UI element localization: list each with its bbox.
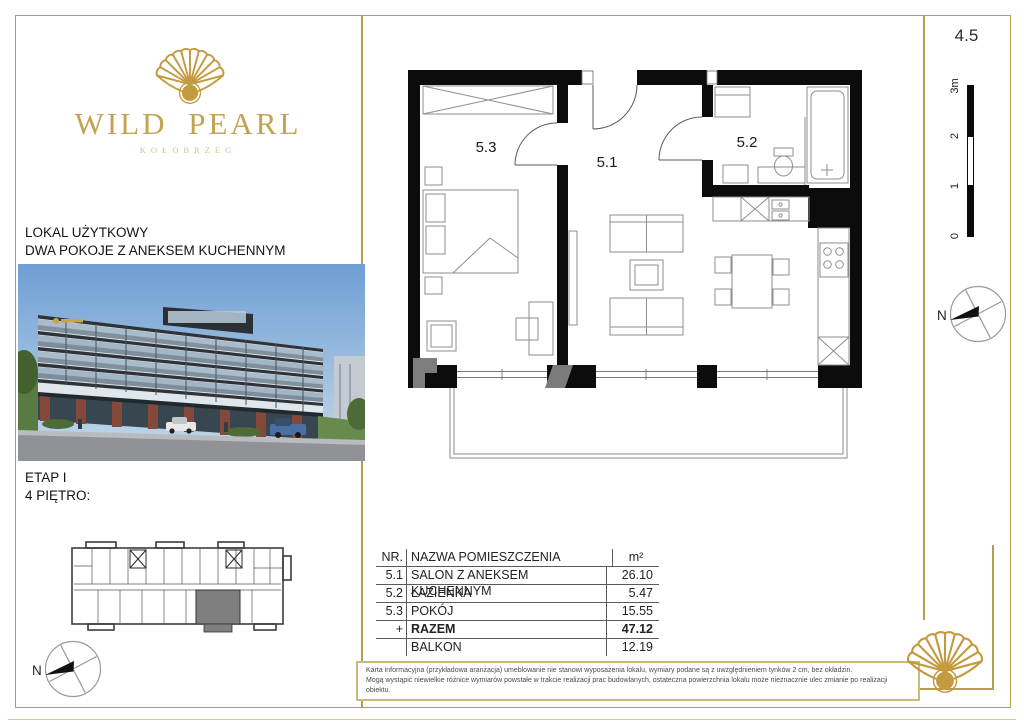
dining-set bbox=[715, 255, 789, 308]
scale-label-2: 2 bbox=[948, 127, 962, 145]
table-row: 5.2 ŁAZIENKA 5.47 bbox=[376, 585, 659, 603]
table-row: 5.3 POKÓJ 15.55 bbox=[376, 603, 659, 621]
floor-label: 4 PIĘTRO: bbox=[25, 487, 90, 505]
stage-label: ETAP I bbox=[25, 469, 90, 487]
unit-type-block: LOKAL UŻYTKOWY DWA POKOJE Z ANEKSEM KUCH… bbox=[25, 224, 286, 260]
floor-plan: 5.1 5.2 5.3 bbox=[395, 55, 885, 485]
table-row: 5.1 SALON Z ANEKSEM KUCHENNYM 26.10 bbox=[376, 567, 659, 585]
area-table: NR. NAZWA POMIESZCZENIA m² 5.1 SALON Z A… bbox=[376, 549, 659, 656]
north-label: N bbox=[32, 663, 42, 678]
walls bbox=[408, 70, 862, 388]
header-name: NAZWA POMIESZCZENIA bbox=[406, 549, 613, 566]
north-label: N bbox=[937, 308, 947, 323]
cell-nr: + bbox=[376, 621, 406, 638]
cell-name: BALKON bbox=[406, 639, 607, 656]
sofa bbox=[610, 298, 683, 335]
scale-label-3m: 3m bbox=[948, 77, 962, 95]
scale-bar-segment bbox=[967, 85, 974, 136]
scale-bar-segment bbox=[967, 186, 974, 237]
cell-area: 47.12 bbox=[607, 621, 659, 638]
brand-city: KOŁOBRZEG bbox=[15, 145, 361, 155]
cell-area: 15.55 bbox=[607, 603, 659, 620]
kitchen-counter bbox=[713, 197, 809, 221]
key-plan bbox=[58, 538, 298, 640]
room-label-salon: 5.1 bbox=[597, 154, 618, 171]
shell-logo-icon bbox=[152, 36, 228, 106]
bottom-rule bbox=[8, 719, 1016, 720]
header-area: m² bbox=[613, 549, 659, 566]
stool bbox=[516, 318, 538, 340]
table-header-row: NR. NAZWA POMIESZCZENIA m² bbox=[376, 549, 659, 567]
windows bbox=[457, 71, 818, 380]
north-arrow bbox=[950, 306, 979, 320]
cell-nr: 5.1 bbox=[376, 567, 406, 584]
corner-ornament-vertical bbox=[992, 545, 994, 690]
info-card-page: WILD PEARL KOŁOBRZEG LOKAL UŻYTKOWY DWA … bbox=[0, 0, 1024, 724]
column-separator-right bbox=[923, 15, 925, 620]
shell-corner-icon bbox=[903, 618, 987, 695]
tv-cabinet bbox=[569, 231, 577, 325]
cell-nr: 5.2 bbox=[376, 585, 406, 602]
unit-type-label: LOKAL UŻYTKOWY bbox=[25, 224, 286, 242]
stage-block: ETAP I 4 PIĘTRO: bbox=[25, 469, 90, 505]
disclaimer-box: Karta informacyjna (przykładowa aranżacj… bbox=[356, 661, 920, 701]
coffee-table bbox=[630, 260, 663, 290]
scale-bar-segment bbox=[967, 136, 974, 186]
desk bbox=[529, 302, 553, 355]
kitchen-right-counter bbox=[818, 228, 849, 365]
cell-name: POKÓJ bbox=[406, 603, 607, 620]
cell-name: ŁAZIENKA bbox=[406, 585, 607, 602]
disclaimer-line2: Mogą wystąpić niewielkie różnice wymiaró… bbox=[366, 676, 910, 696]
table-row-total: + RAZEM 47.12 bbox=[376, 621, 659, 639]
armchair bbox=[427, 321, 456, 351]
cell-area: 5.47 bbox=[607, 585, 659, 602]
table-row: BALKON 12.19 bbox=[376, 639, 659, 656]
room-label-bathroom: 5.2 bbox=[737, 134, 758, 151]
nightstand bbox=[425, 277, 442, 294]
brand-name: WILD PEARL bbox=[15, 106, 361, 142]
compass-left: N bbox=[28, 636, 106, 704]
cell-area: 26.10 bbox=[607, 567, 659, 584]
compass-right: N bbox=[933, 281, 1011, 349]
cell-nr: 5.3 bbox=[376, 603, 406, 620]
bed bbox=[423, 190, 518, 273]
cell-nr bbox=[376, 639, 406, 656]
scale-label-1: 1 bbox=[948, 177, 962, 195]
cell-name: RAZEM bbox=[406, 621, 607, 638]
wardrobe bbox=[423, 86, 553, 114]
building-photo bbox=[18, 264, 365, 461]
highlighted-unit bbox=[196, 590, 240, 624]
cell-area: 12.19 bbox=[607, 639, 659, 656]
unit-number: 4.5 bbox=[923, 26, 1010, 46]
disclaimer-line1: Karta informacyjna (przykładowa aranżacj… bbox=[366, 666, 910, 676]
cell-name: SALON Z ANEKSEM KUCHENNYM bbox=[406, 567, 607, 584]
unit-layout-label: DWA POKOJE Z ANEKSEM KUCHENNYM bbox=[25, 242, 286, 260]
scale-label-0: 0 bbox=[948, 227, 962, 245]
nightstand bbox=[425, 167, 442, 185]
room-label-bedroom: 5.3 bbox=[476, 139, 497, 156]
header-nr: NR. bbox=[376, 549, 406, 566]
doors bbox=[515, 85, 702, 165]
sofa bbox=[610, 215, 683, 252]
balcony bbox=[450, 388, 847, 458]
bathroom-fixtures bbox=[715, 87, 848, 185]
